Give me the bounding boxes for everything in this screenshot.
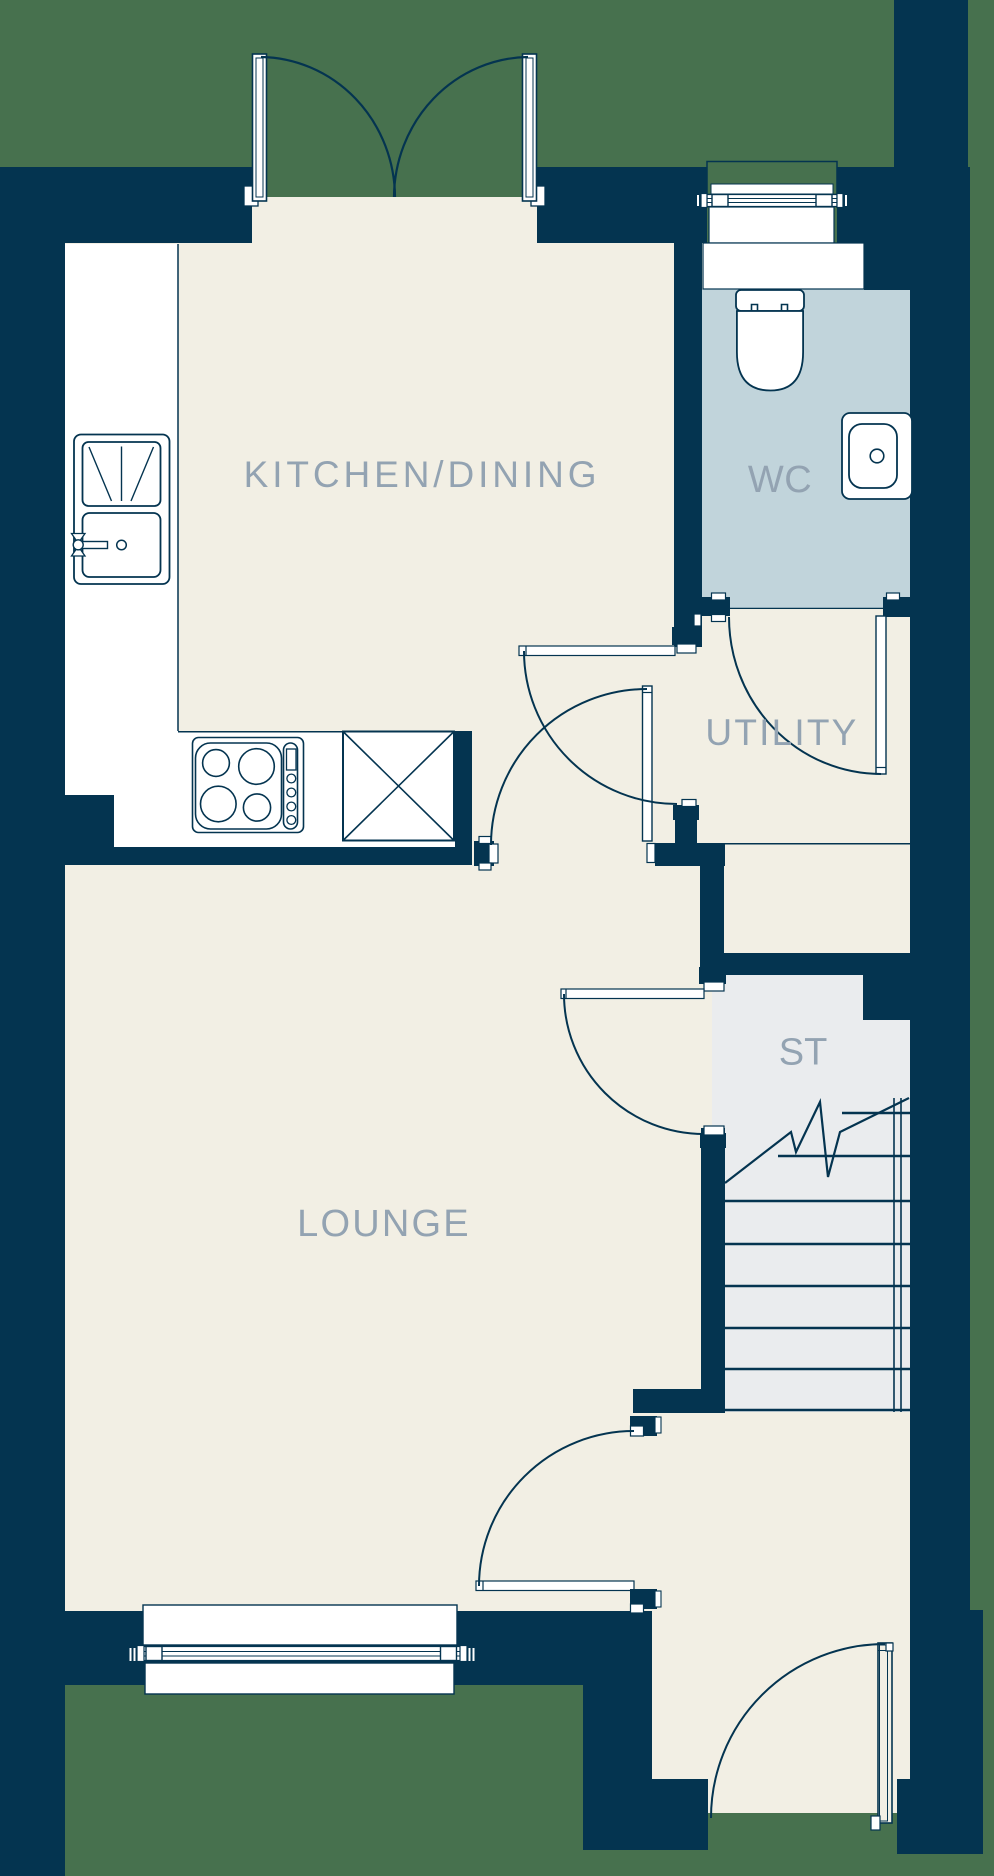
svg-text:UTILITY: UTILITY [705,712,858,753]
svg-text:LOUNGE: LOUNGE [297,1203,471,1245]
svg-text:KITCHEN/DINING: KITCHEN/DINING [244,454,601,495]
svg-text:ST: ST [779,1032,828,1074]
svg-text:WC: WC [748,459,812,501]
